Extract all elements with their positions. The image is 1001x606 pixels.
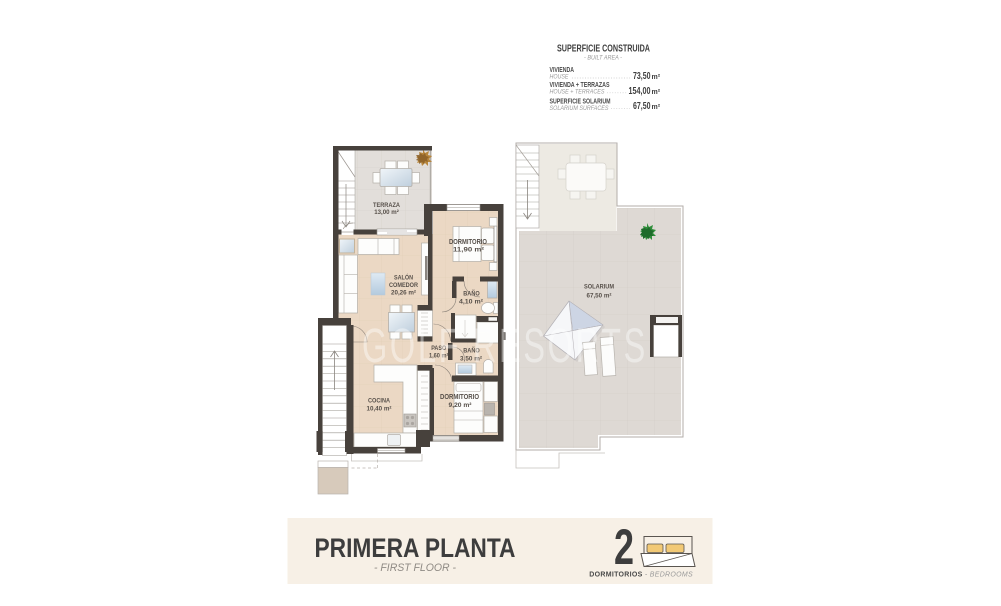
svg-text:BAÑO: BAÑO	[463, 291, 480, 298]
svg-text:154,00: 154,00	[629, 86, 651, 97]
svg-text:2: 2	[614, 519, 634, 575]
svg-text:SOLARIUM SURFACES: SOLARIUM SURFACES	[550, 105, 609, 112]
svg-text:11,90 m²: 11,90 m²	[453, 247, 485, 254]
svg-text:9,20 m²: 9,20 m²	[449, 402, 473, 409]
svg-text:13,00 m²: 13,00 m²	[374, 209, 399, 216]
svg-text:TERRAZA: TERRAZA	[373, 202, 400, 209]
svg-text:67,50: 67,50	[633, 101, 651, 112]
svg-text:- FIRST FLOOR -: - FIRST FLOOR -	[374, 562, 456, 574]
svg-text:COCINA: COCINA	[368, 398, 390, 405]
svg-text:DORMITORIO: DORMITORIO	[449, 239, 487, 246]
svg-text:HOUSE + TERRACES: HOUSE + TERRACES	[550, 88, 605, 95]
svg-text:m²: m²	[652, 104, 661, 111]
svg-text:10,40 m²: 10,40 m²	[367, 406, 392, 413]
svg-text:HOUSE: HOUSE	[550, 74, 569, 81]
svg-text:20,26 m²: 20,26 m²	[391, 290, 416, 297]
svg-text:DORMITORIO: DORMITORIO	[440, 394, 479, 401]
svg-text:DORMITORIOS - BEDROOMS: DORMITORIOS - BEDROOMS	[589, 572, 693, 579]
svg-text:GOLF RESORTS: GOLF RESORTS	[362, 320, 648, 373]
svg-text:67,50 m²: 67,50 m²	[587, 293, 612, 300]
svg-text:COMEDOR: COMEDOR	[389, 282, 418, 289]
svg-text:SALÓN: SALÓN	[394, 274, 413, 282]
svg-text:SOLARIUM: SOLARIUM	[584, 284, 614, 291]
svg-text:73,50: 73,50	[633, 71, 651, 82]
svg-text:PRIMERA PLANTA: PRIMERA PLANTA	[315, 533, 516, 563]
svg-text:4,10 m²: 4,10 m²	[459, 299, 483, 306]
svg-text:- BUILT AREA -: - BUILT AREA -	[584, 55, 623, 62]
svg-text:SUPERFICIE CONSTRUIDA: SUPERFICIE CONSTRUIDA	[557, 43, 650, 55]
svg-text:m²: m²	[652, 89, 661, 96]
svg-text:m²: m²	[652, 74, 661, 81]
